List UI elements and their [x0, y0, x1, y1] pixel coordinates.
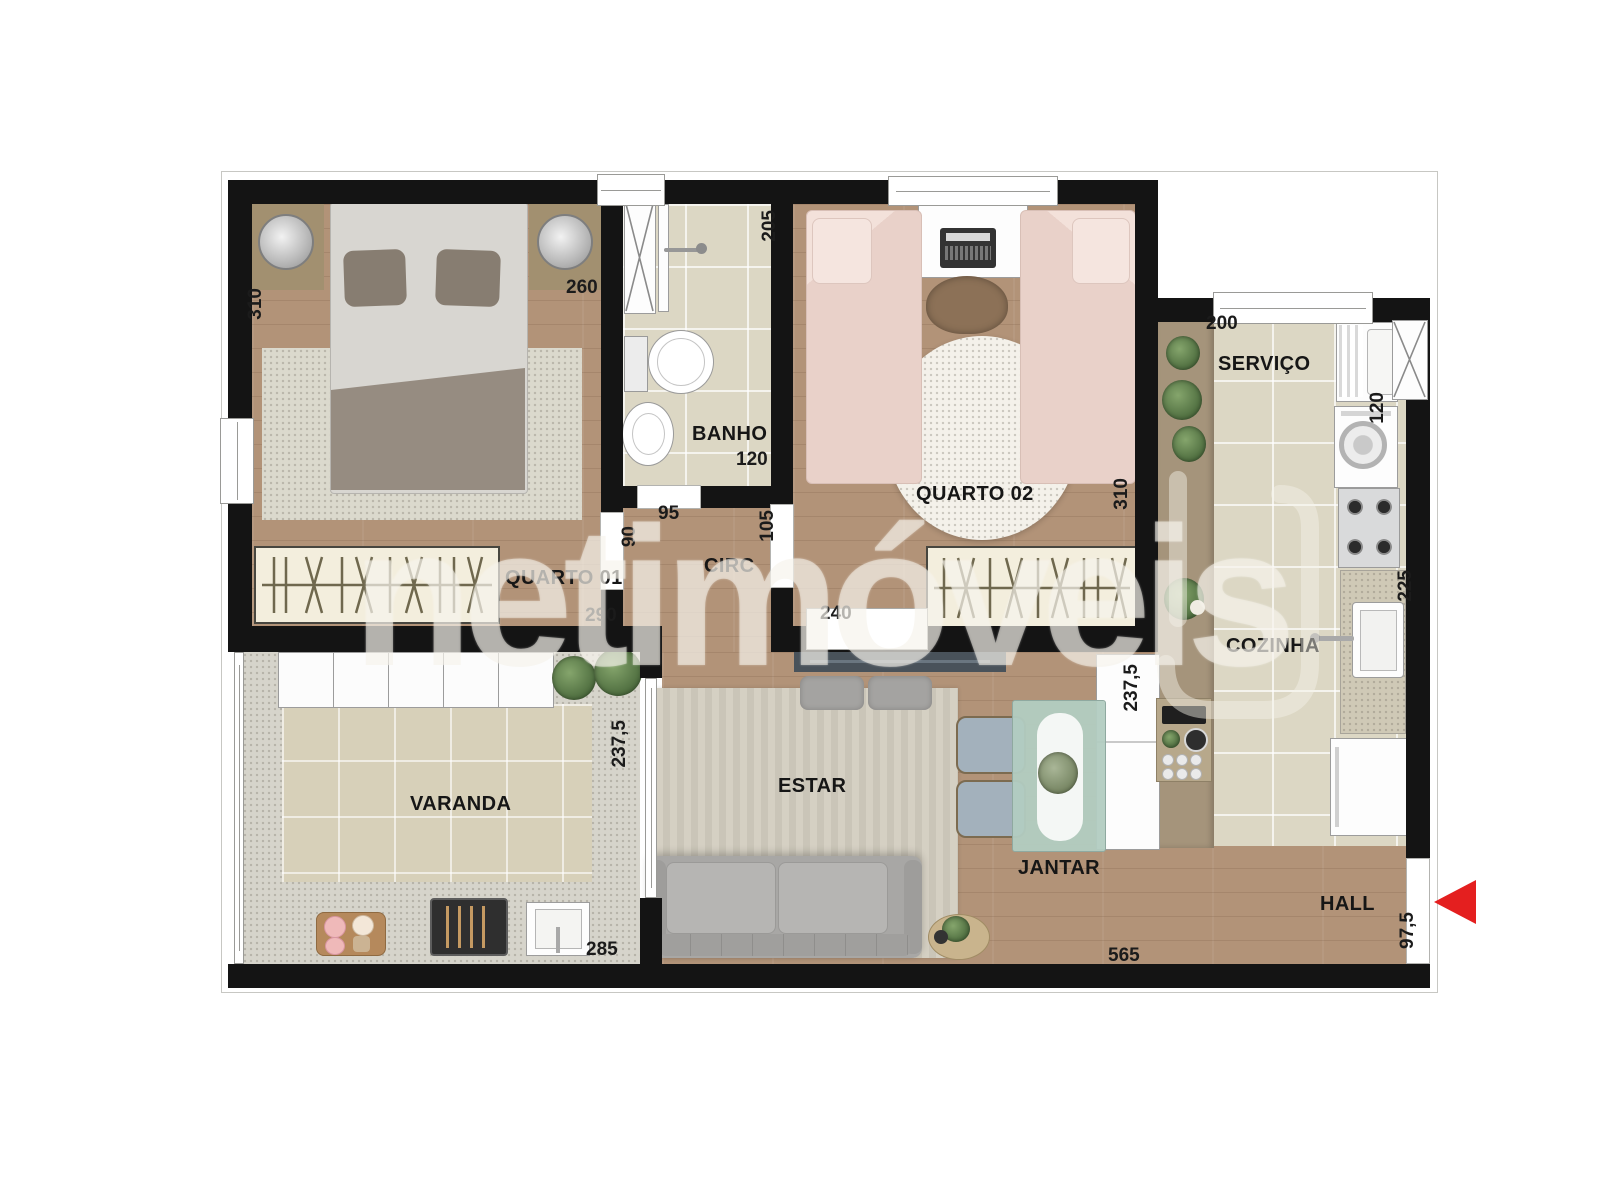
- desk-chair: [926, 276, 1008, 334]
- kitchen-sink-icon: [1352, 602, 1404, 678]
- laundry-sink: [1336, 322, 1398, 402]
- room-label-varanda: VARANDA: [410, 794, 511, 814]
- wall: [228, 180, 252, 652]
- dim-servico-120: 120: [1368, 392, 1387, 424]
- laptop-icon: [940, 228, 996, 268]
- faucet-icon: [1316, 636, 1354, 641]
- laptop-screen: [946, 233, 990, 241]
- plant-icon: [1162, 380, 1202, 420]
- pillow: [1072, 218, 1130, 284]
- pillow: [812, 218, 872, 284]
- varanda-sink-icon: [526, 902, 590, 956]
- plate-icon: [325, 937, 345, 955]
- watermark: netimóveis: [352, 498, 1286, 696]
- varanda-railing: [234, 652, 244, 964]
- toilet-bowl: [657, 338, 705, 386]
- dim-quarto01-260: 260: [566, 278, 598, 297]
- dim-banho-205: 205: [760, 210, 779, 242]
- sink-banho-icon: [622, 402, 674, 466]
- pillow: [343, 249, 407, 307]
- lamp-icon: [537, 214, 593, 270]
- fridge-handle: [1335, 747, 1339, 827]
- button-icon: [1162, 754, 1174, 766]
- burner-icon: [1342, 494, 1368, 520]
- wall: [228, 964, 1430, 988]
- plant-icon: [1172, 426, 1206, 462]
- window-banho: [597, 174, 665, 206]
- button-icon: [1162, 768, 1174, 780]
- dim-banho-120: 120: [736, 450, 768, 469]
- faucet-icon: [556, 927, 560, 953]
- toilet-tank: [624, 336, 648, 392]
- shower-head-icon: [696, 243, 707, 254]
- bowl-icon: [934, 930, 948, 944]
- plant-icon: [1166, 336, 1200, 370]
- washer-drum: [1339, 421, 1387, 469]
- laundry-basin: [1367, 329, 1395, 395]
- burner-icon: [1371, 534, 1397, 560]
- floor-plan: QUARTO 01 BANHO CIRC QUARTO 02 SERVIÇO C…: [0, 0, 1600, 1178]
- wall: [640, 898, 662, 964]
- washing-machine-icon: [1334, 406, 1398, 488]
- varanda-glass-door: [645, 678, 657, 898]
- toilet-icon: [648, 330, 714, 394]
- lamp-icon: [258, 214, 314, 270]
- room-label-banho: BANHO: [692, 424, 767, 444]
- watermark-house-icon: [1150, 468, 1320, 736]
- dim-quarto01-310: 310: [246, 288, 265, 320]
- laundry-ridges: [1339, 325, 1363, 397]
- centerpiece-plant-icon: [1038, 752, 1078, 794]
- button-icon: [1190, 754, 1202, 766]
- button-icon: [1190, 768, 1202, 780]
- room-label-servico: SERVIÇO: [1218, 354, 1310, 374]
- burner-icon: [1371, 494, 1397, 520]
- room-label-hall: HALL: [1320, 894, 1375, 914]
- pillow: [435, 249, 501, 307]
- dim-bottom-565: 565: [1108, 946, 1140, 965]
- napkin-icon: [353, 936, 370, 952]
- window-quarto02: [888, 176, 1058, 206]
- laptop-keys: [945, 246, 991, 260]
- grill-icon: [430, 898, 508, 956]
- dim-varanda-285: 285: [586, 940, 618, 959]
- shower-icon: [624, 202, 656, 314]
- room-label-jantar: JANTAR: [1018, 858, 1100, 878]
- plate-icon: [324, 916, 346, 938]
- sofa-icon: [648, 856, 922, 958]
- shower-arm-icon: [664, 248, 700, 252]
- burner-icon: [1342, 534, 1368, 560]
- dim-cozinha-225: 225: [1396, 570, 1415, 602]
- sink-basin: [632, 413, 665, 455]
- sink-basin: [1360, 610, 1397, 671]
- grill-skewers: [446, 906, 490, 948]
- entry-arrow-icon: [1434, 880, 1476, 924]
- dim-hall-97-5: 97,5: [1398, 912, 1417, 949]
- sofa-back: [660, 934, 910, 956]
- dim-servico-200: 200: [1206, 314, 1238, 333]
- window-quarto01: [220, 418, 254, 504]
- button-icon: [1176, 768, 1188, 780]
- shower-screen: [658, 204, 669, 312]
- dim-varanda-237-5: 237,5: [610, 720, 629, 768]
- plate-icon: [352, 915, 374, 936]
- sofa-cushion: [666, 862, 776, 934]
- room-label-estar: ESTAR: [778, 776, 846, 796]
- duct-icon: [1392, 320, 1428, 400]
- button-icon: [1176, 754, 1188, 766]
- watermark-text: netimóveis: [352, 486, 1286, 707]
- counter-seam: [1097, 741, 1158, 743]
- sofa-cushion: [778, 862, 888, 934]
- fridge-icon: [1330, 738, 1410, 836]
